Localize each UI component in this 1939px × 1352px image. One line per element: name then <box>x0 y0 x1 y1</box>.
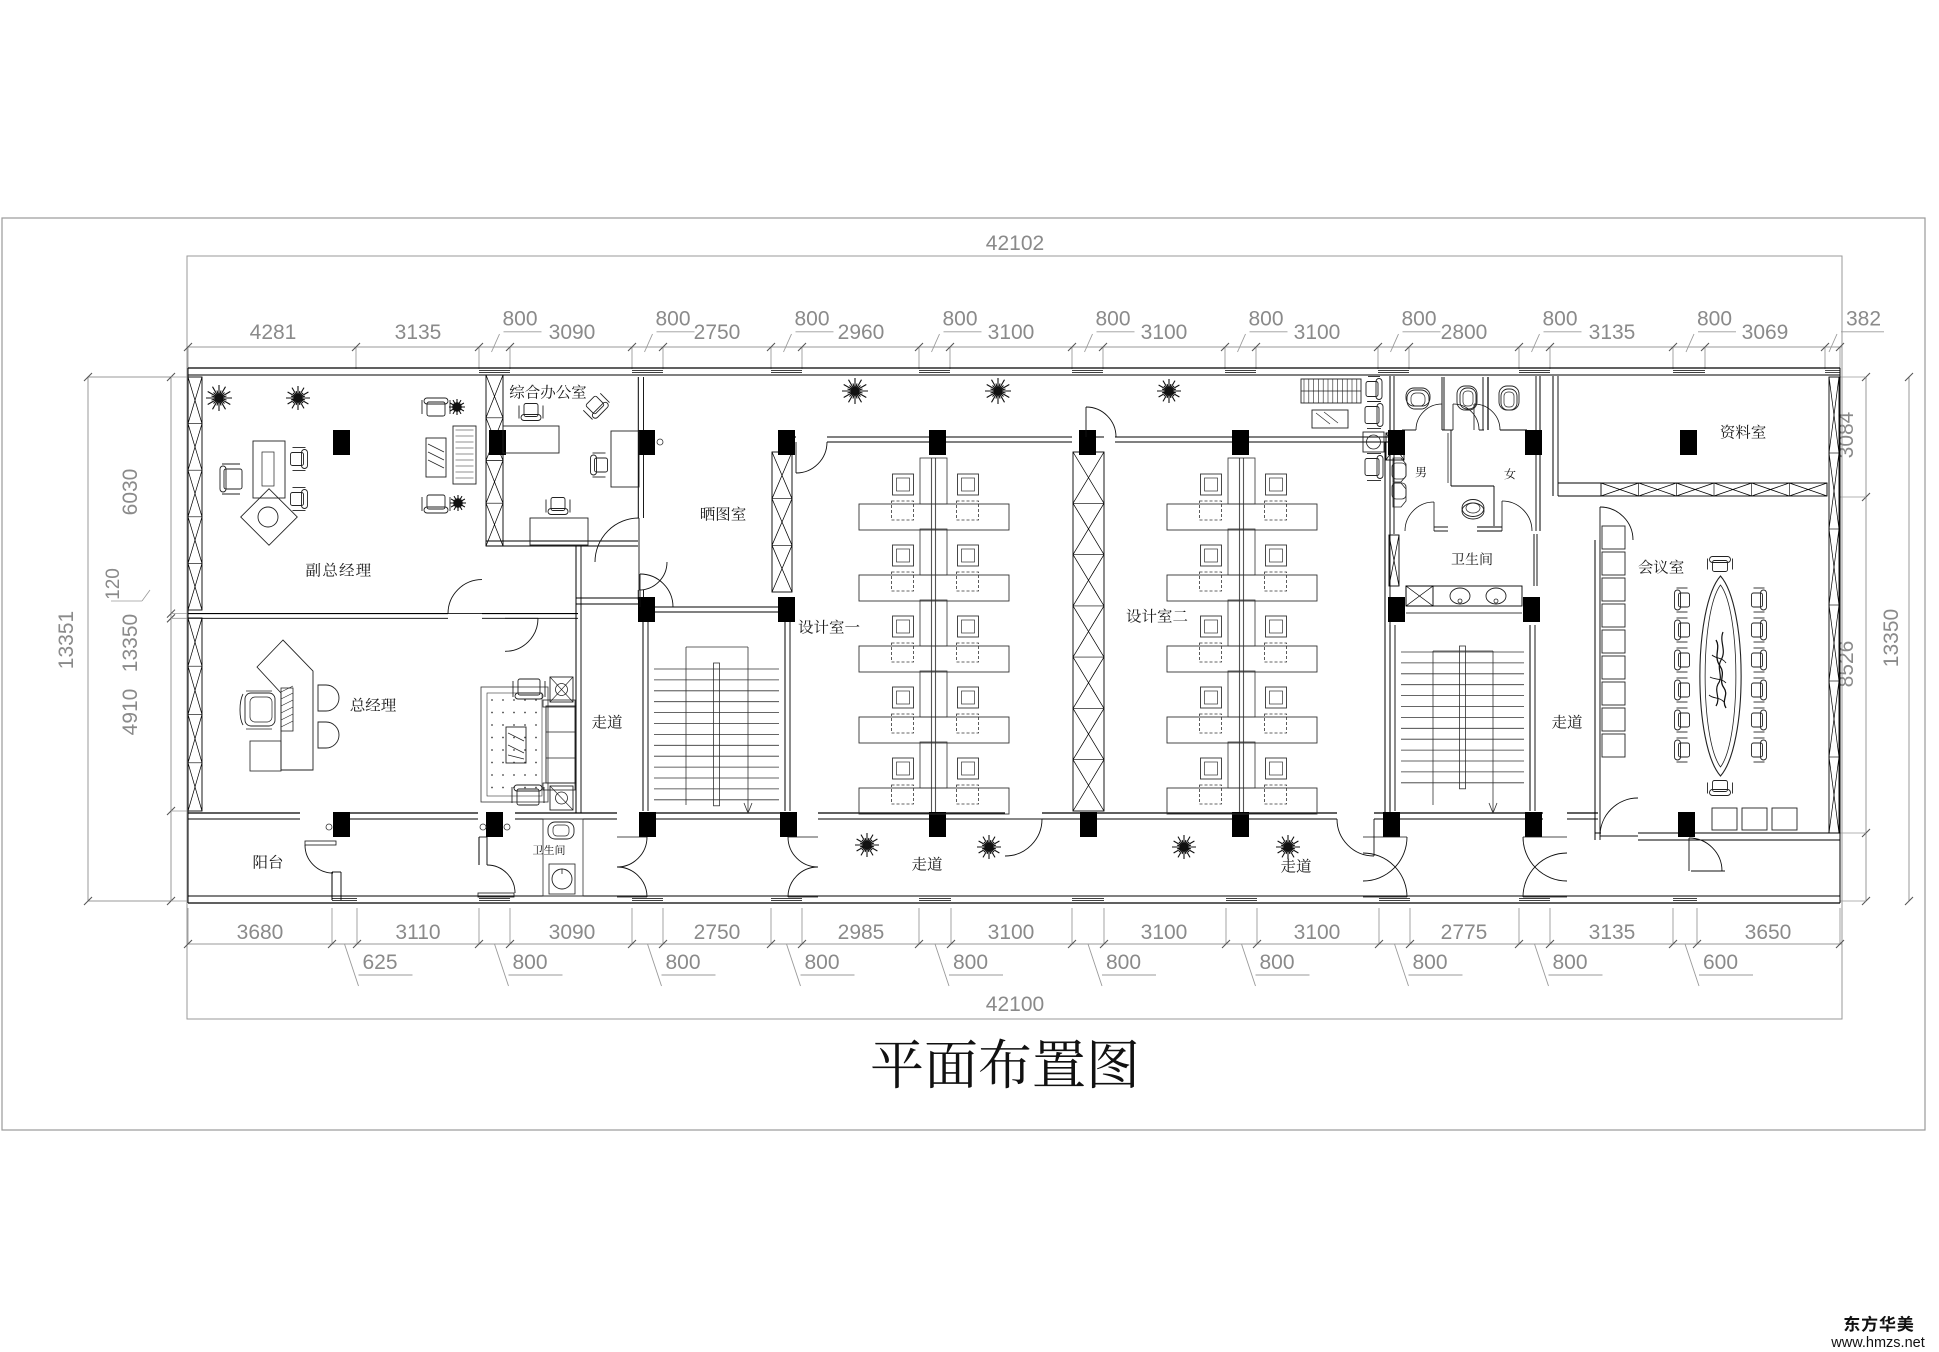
svg-text:3100: 3100 <box>1294 321 1341 344</box>
svg-text:6030: 6030 <box>119 469 142 516</box>
svg-text:3069: 3069 <box>1742 321 1789 344</box>
svg-text:800: 800 <box>943 308 978 331</box>
svg-text:2960: 2960 <box>838 321 885 344</box>
svg-text:3110: 3110 <box>395 921 440 944</box>
svg-text:13350: 13350 <box>119 614 142 672</box>
svg-text:800: 800 <box>656 308 691 331</box>
svg-text:13351: 13351 <box>55 611 78 669</box>
svg-text:2750: 2750 <box>694 321 741 344</box>
svg-text:3135: 3135 <box>1589 921 1636 944</box>
svg-text:800: 800 <box>1553 951 1588 974</box>
svg-text:3100: 3100 <box>1141 921 1188 944</box>
svg-text:800: 800 <box>1096 308 1131 331</box>
svg-text:800: 800 <box>953 951 988 974</box>
svg-text:3100: 3100 <box>1141 321 1188 344</box>
svg-text:4281: 4281 <box>250 321 297 344</box>
svg-text:800: 800 <box>513 951 548 974</box>
svg-text:4910: 4910 <box>119 689 142 736</box>
svg-text:3100: 3100 <box>988 321 1035 344</box>
svg-text:625: 625 <box>363 951 398 974</box>
svg-text:382: 382 <box>1846 308 1881 331</box>
svg-text:13350: 13350 <box>1880 609 1903 667</box>
svg-text:www.hmzs.net: www.hmzs.net <box>1830 1335 1924 1351</box>
svg-text:42102: 42102 <box>986 232 1044 255</box>
svg-text:800: 800 <box>805 951 840 974</box>
svg-text:800: 800 <box>1249 308 1284 331</box>
svg-text:800: 800 <box>1402 308 1437 331</box>
svg-text:3135: 3135 <box>395 321 442 344</box>
svg-text:800: 800 <box>666 951 701 974</box>
svg-text:800: 800 <box>1697 308 1732 331</box>
svg-text:800: 800 <box>503 308 538 331</box>
svg-text:2985: 2985 <box>838 921 885 944</box>
svg-text:2775: 2775 <box>1441 921 1488 944</box>
svg-text:800: 800 <box>1543 308 1578 331</box>
svg-text:3650: 3650 <box>1745 921 1792 944</box>
svg-text:42100: 42100 <box>986 993 1044 1016</box>
svg-text:800: 800 <box>1106 951 1141 974</box>
svg-text:120: 120 <box>103 568 124 600</box>
svg-text:800: 800 <box>795 308 830 331</box>
svg-text:3135: 3135 <box>1589 321 1636 344</box>
svg-text:3100: 3100 <box>988 921 1035 944</box>
svg-text:3090: 3090 <box>549 321 596 344</box>
svg-text:800: 800 <box>1413 951 1448 974</box>
svg-text:3680: 3680 <box>237 921 284 944</box>
svg-text:600: 600 <box>1703 951 1738 974</box>
svg-text:800: 800 <box>1260 951 1295 974</box>
svg-text:2750: 2750 <box>694 921 741 944</box>
svg-text:8526: 8526 <box>1835 641 1858 688</box>
svg-text:3100: 3100 <box>1294 921 1341 944</box>
svg-text:2800: 2800 <box>1441 321 1488 344</box>
svg-text:3090: 3090 <box>549 921 596 944</box>
